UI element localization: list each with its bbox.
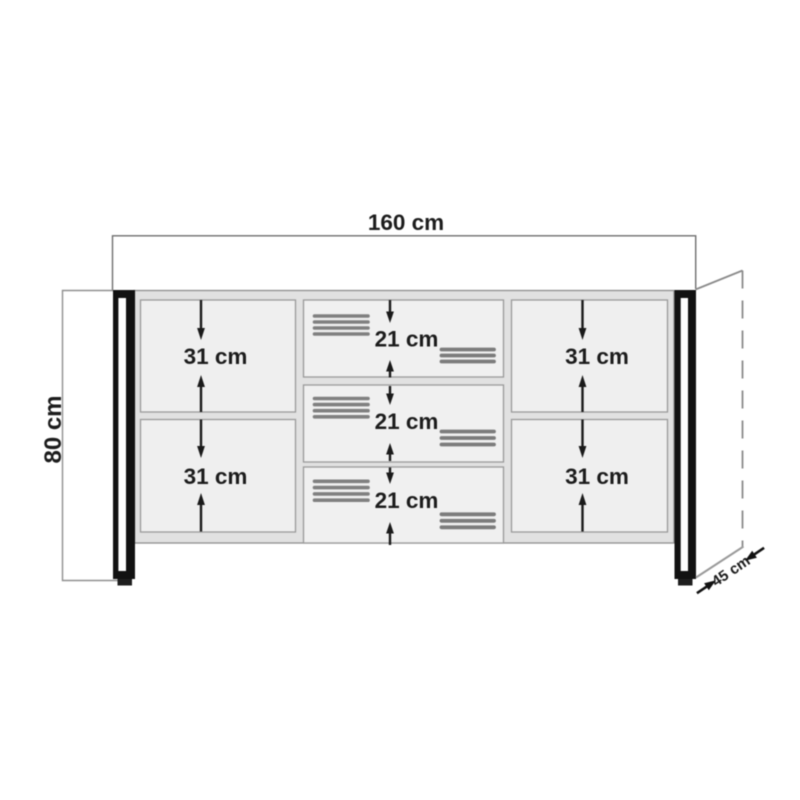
svg-text:160 cm: 160 cm — [368, 210, 444, 235]
svg-text:21 cm: 21 cm — [375, 327, 439, 352]
svg-text:21 cm: 21 cm — [375, 409, 439, 434]
svg-text:31 cm: 31 cm — [565, 344, 629, 369]
svg-text:31 cm: 31 cm — [184, 344, 248, 369]
svg-text:31 cm: 31 cm — [184, 464, 248, 489]
svg-text:31 cm: 31 cm — [565, 464, 629, 489]
svg-text:80 cm: 80 cm — [40, 395, 67, 463]
svg-text:21 cm: 21 cm — [375, 488, 439, 513]
svg-text:45 cm: 45 cm — [709, 552, 754, 590]
